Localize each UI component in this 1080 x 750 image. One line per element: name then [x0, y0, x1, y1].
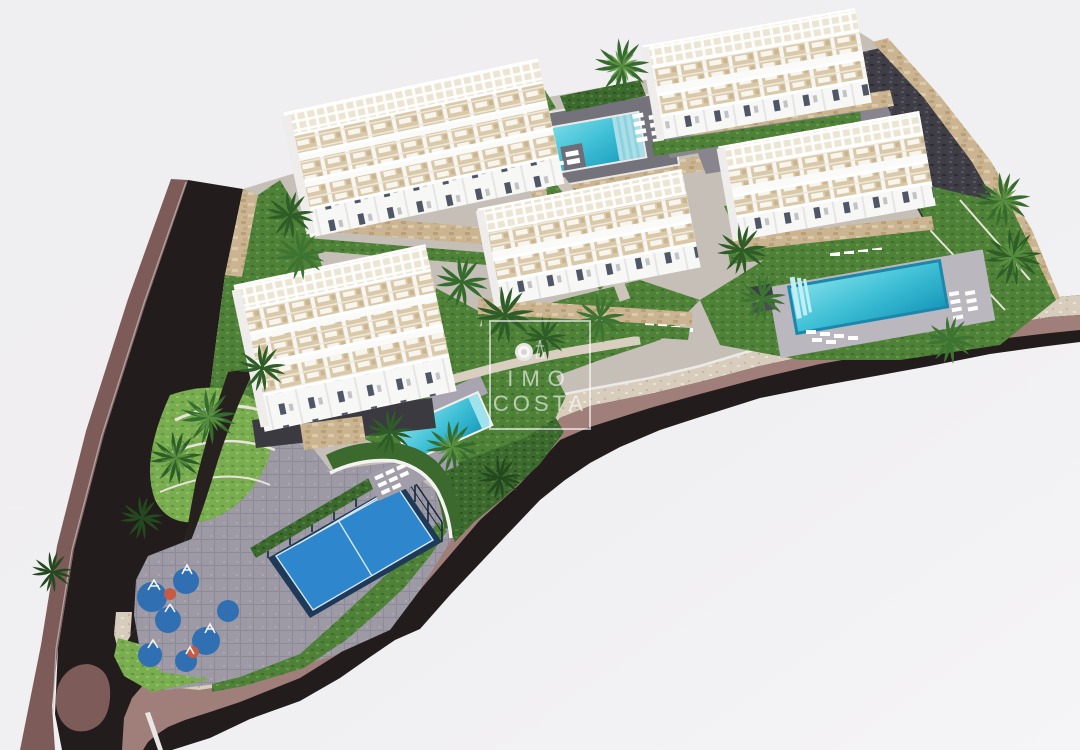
- svg-text:COSTA: COSTA: [493, 391, 587, 416]
- svg-text:IMO: IMO: [507, 366, 573, 391]
